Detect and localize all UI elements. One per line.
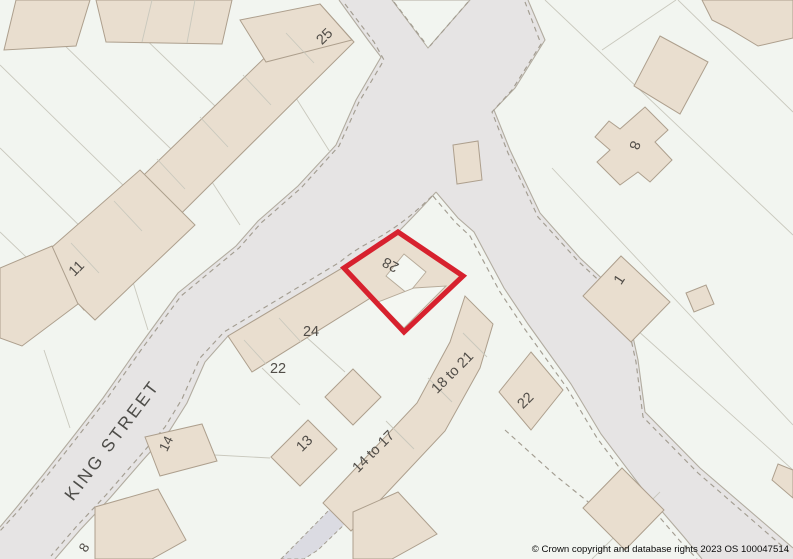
building bbox=[453, 141, 482, 184]
label-22-left: 22 bbox=[270, 361, 286, 377]
copyright-notice: © Crown copyright and database rights 20… bbox=[532, 544, 790, 555]
map-canvas: 25 11 KING STREET 14 8 24 22 13 14 to 17… bbox=[0, 0, 793, 559]
building bbox=[96, 0, 232, 44]
building bbox=[4, 0, 90, 50]
os-map-extract: 25 11 KING STREET 14 8 24 22 13 14 to 17… bbox=[0, 0, 793, 559]
label-24: 24 bbox=[303, 324, 319, 340]
